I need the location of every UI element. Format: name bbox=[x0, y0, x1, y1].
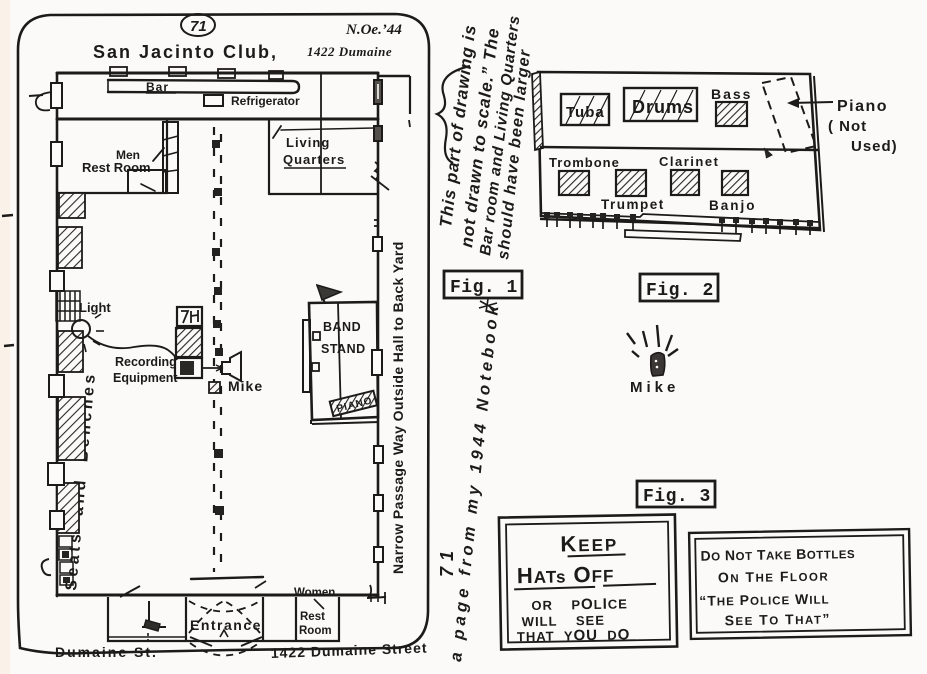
svg-text:1422 Dumaine: 1422 Dumaine bbox=[307, 44, 392, 59]
svg-text:Mike: Mike bbox=[630, 379, 679, 396]
svg-text:BAND: BAND bbox=[323, 320, 361, 334]
svg-text:OR POLICE: OR POLICE bbox=[531, 595, 628, 614]
svg-text:Women: Women bbox=[294, 587, 335, 599]
svg-text:Room: Room bbox=[299, 625, 332, 637]
svg-text:Refrigerator: Refrigerator bbox=[231, 94, 300, 108]
svg-text:Mike: Mike bbox=[228, 378, 263, 394]
svg-text:Dumaine St.: Dumaine St. bbox=[55, 644, 158, 660]
svg-text:Recording: Recording bbox=[115, 355, 177, 369]
svg-text:N.Oe.’44: N.Oe.’44 bbox=[345, 22, 402, 38]
svg-text:Tuba: Tuba bbox=[566, 104, 605, 121]
svg-text:Fig. 2: Fig. 2 bbox=[646, 281, 714, 301]
svg-text:Fig. 3: Fig. 3 bbox=[643, 487, 711, 507]
svg-text:Piano: Piano bbox=[837, 98, 888, 115]
svg-text:71: 71 bbox=[190, 18, 207, 35]
svg-text:Entrance: Entrance bbox=[190, 617, 262, 633]
svg-text:Rest: Rest bbox=[300, 611, 325, 623]
svg-text:Trumpet: Trumpet bbox=[601, 197, 665, 212]
svg-text:Living: Living bbox=[286, 135, 330, 150]
svg-text:Trombone: Trombone bbox=[549, 155, 620, 170]
svg-text:THAT YOU DO: THAT YOU DO bbox=[517, 626, 631, 645]
svg-text:Narrow Passage Way Outside Hal: Narrow Passage Way Outside Hall to Back … bbox=[390, 241, 406, 574]
svg-text:Light: Light bbox=[79, 300, 111, 315]
svg-text:Bar: Bar bbox=[146, 80, 169, 94]
svg-text:Quarters: Quarters bbox=[283, 152, 345, 167]
svg-text:Rest Room: Rest Room bbox=[82, 160, 151, 175]
svg-text:Clarinet: Clarinet bbox=[659, 154, 719, 169]
svg-text:Equipment: Equipment bbox=[113, 371, 178, 385]
svg-text:( Not: ( Not bbox=[828, 118, 867, 135]
svg-text:Used): Used) bbox=[851, 138, 898, 155]
svg-text:Banjo: Banjo bbox=[709, 198, 757, 213]
svg-text:Bass: Bass bbox=[711, 86, 752, 102]
svg-text:STAND: STAND bbox=[321, 342, 366, 356]
svg-text:Drums: Drums bbox=[632, 97, 694, 117]
svg-text:San Jacinto Club,: San Jacinto Club, bbox=[93, 42, 278, 62]
svg-text:Fig. 1: Fig. 1 bbox=[450, 278, 518, 298]
svg-text:71: 71 bbox=[437, 545, 457, 577]
